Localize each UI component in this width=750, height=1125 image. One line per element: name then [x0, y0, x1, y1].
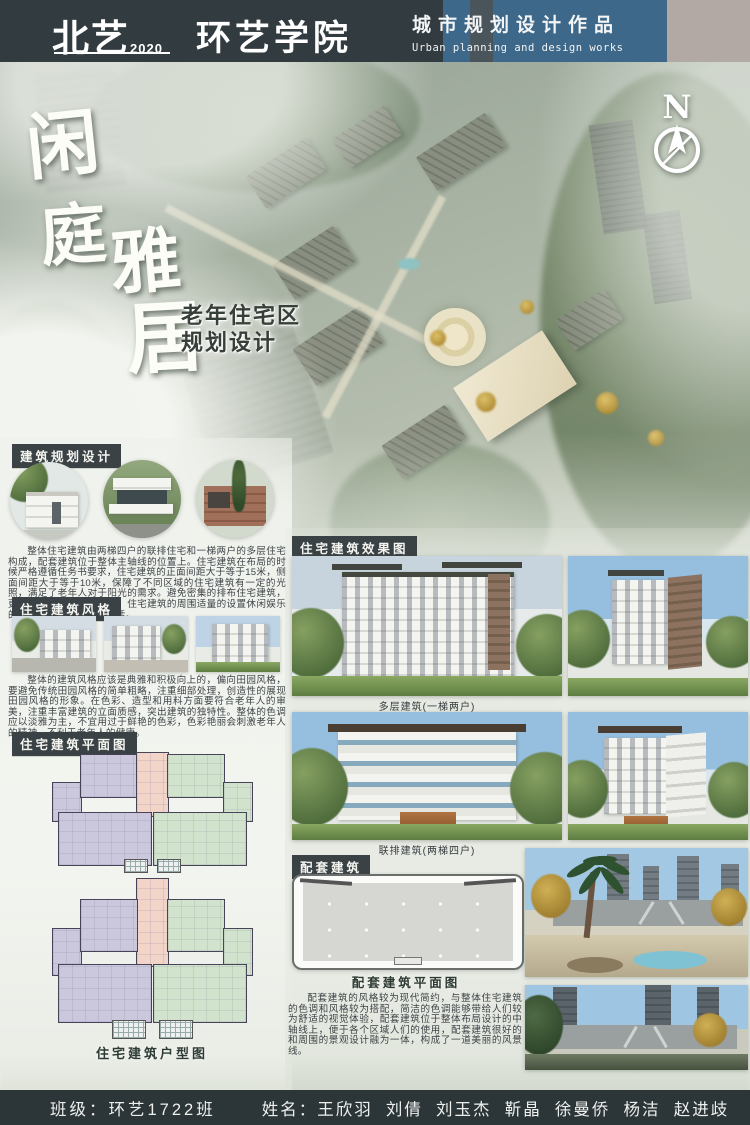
render-multistory-corner: [568, 556, 748, 696]
work-type-cn: 城市规划设计作品: [412, 10, 668, 37]
floor-plan-2: [52, 890, 253, 1038]
amenity-plan-caption: 配套建筑平面图: [292, 972, 520, 991]
amenity-plan-fill: [303, 883, 513, 961]
poster: 北艺2020 环艺学院 城市规划设计作品 Urban planning and …: [0, 0, 750, 1125]
north-arrow-icon: N: [648, 88, 706, 185]
hero-subtitle: 老年住宅区 规划设计: [181, 302, 301, 356]
work-type-en: Urban planning and design works: [412, 42, 668, 54]
amenity-plan-drawing: [292, 874, 524, 970]
style-photo-apartment: [196, 616, 280, 672]
names-label: 姓名：王欣羽 刘倩 刘玉杰 靳晶 徐曼侨 杨洁 赵进歧: [262, 1096, 730, 1120]
render-multistory-front: [292, 556, 562, 696]
amenity-plan-entrance: [394, 957, 422, 965]
floor-plan-caption: 住宅建筑户型图: [62, 1043, 242, 1062]
hero-subtitle-line1: 老年住宅区: [181, 302, 301, 329]
hero-subtitle-line2: 规划设计: [181, 329, 301, 356]
hero-title-char-1: 闲: [21, 83, 104, 195]
circle-photo-house: [10, 462, 88, 540]
circle-photo-modern-house: [103, 460, 181, 538]
brand-underline: [54, 52, 170, 54]
amenity-paragraph: 配套建筑的风格较为现代简约，与整体住宅建筑的色调和风格较为搭配，简洁的色调能够带…: [288, 994, 522, 1058]
render-townhouse-front: [292, 712, 562, 840]
render-townhouse-corner: [568, 712, 748, 840]
label-multistory: 多层建筑(一梯两户): [292, 698, 562, 713]
header-beige-block: [667, 0, 750, 62]
render-amenity-building: [525, 985, 748, 1070]
college-name: 环艺学院: [196, 10, 352, 61]
north-letter: N: [662, 88, 691, 126]
work-type-title: 城市规划设计作品 Urban planning and design works: [412, 10, 668, 54]
floor-plan-1: [52, 752, 253, 868]
render-pool-plaza: [525, 848, 748, 977]
style-paragraph: 整体的建筑风格应该是典雅和积极向上的，偏向田园风格，要避免传统田园风格的简单粗略…: [8, 676, 286, 740]
class-label: 班级：环艺1722班: [50, 1096, 216, 1120]
circle-photo-brick-house: [196, 460, 274, 538]
footer-bar: 班级：环艺1722班 姓名：王欣羽 刘倩 刘玉杰 靳晶 徐曼侨 杨洁 赵进歧: [0, 1090, 750, 1125]
style-photo-modern: [104, 616, 188, 672]
hero-title-char-2: 庭: [37, 180, 110, 280]
style-photo-street: [12, 616, 96, 672]
header-bar: 北艺2020 环艺学院 城市规划设计作品 Urban planning and …: [0, 0, 750, 62]
